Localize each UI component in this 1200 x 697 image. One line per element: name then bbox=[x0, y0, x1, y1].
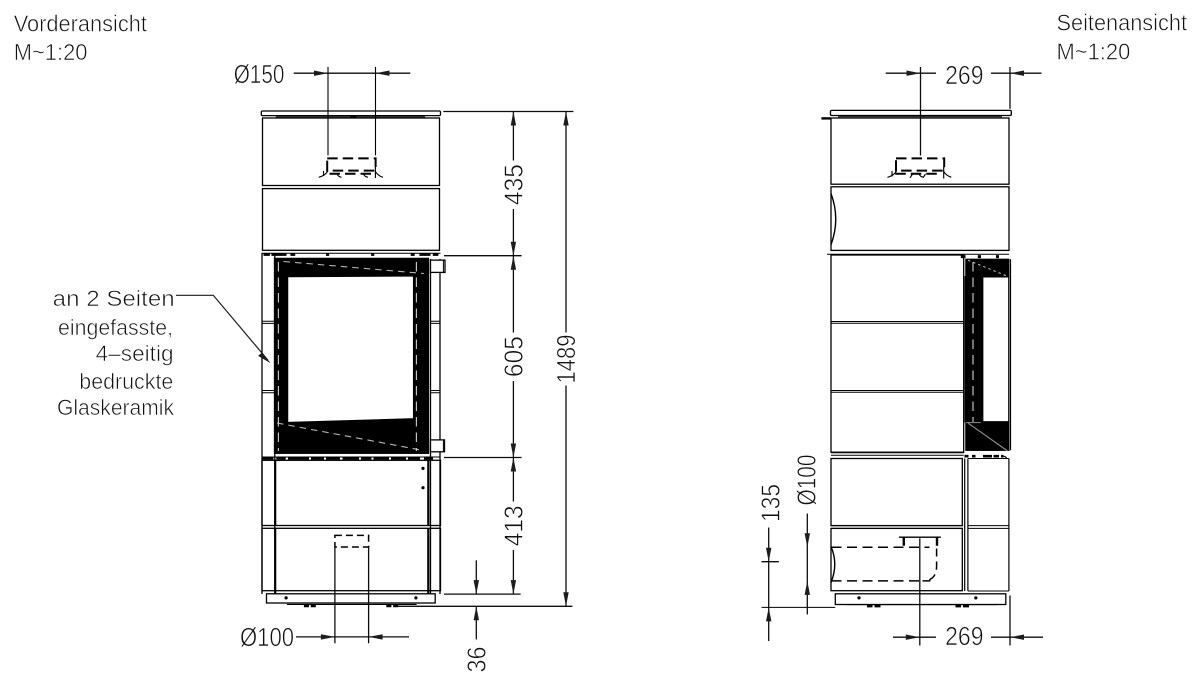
svg-text:435: 435 bbox=[498, 164, 528, 205]
svg-text:135: 135 bbox=[755, 484, 785, 522]
svg-text:Ø100: Ø100 bbox=[791, 455, 821, 506]
svg-text:1489: 1489 bbox=[551, 335, 581, 384]
svg-text:269: 269 bbox=[945, 60, 984, 90]
svg-text:Glaskeramik: Glaskeramik bbox=[57, 395, 175, 420]
svg-text:Vorderansicht: Vorderansicht bbox=[14, 11, 148, 37]
svg-text:36: 36 bbox=[461, 647, 491, 673]
svg-text:605: 605 bbox=[498, 336, 528, 377]
svg-text:eingefasste,: eingefasste, bbox=[58, 315, 173, 340]
svg-text:an 2 Seiten: an 2 Seiten bbox=[53, 286, 175, 311]
svg-text:4–seitig: 4–seitig bbox=[96, 341, 174, 366]
svg-text:bedruckte: bedruckte bbox=[79, 369, 173, 394]
svg-text:Ø100: Ø100 bbox=[240, 622, 294, 652]
svg-text:M~1:20: M~1:20 bbox=[1057, 39, 1131, 65]
svg-text:M~1:20: M~1:20 bbox=[14, 39, 88, 65]
svg-text:269: 269 bbox=[945, 621, 984, 651]
svg-text:Seitenansicht: Seitenansicht bbox=[1057, 9, 1188, 35]
svg-text:413: 413 bbox=[498, 505, 528, 546]
svg-text:Ø150: Ø150 bbox=[234, 59, 285, 89]
